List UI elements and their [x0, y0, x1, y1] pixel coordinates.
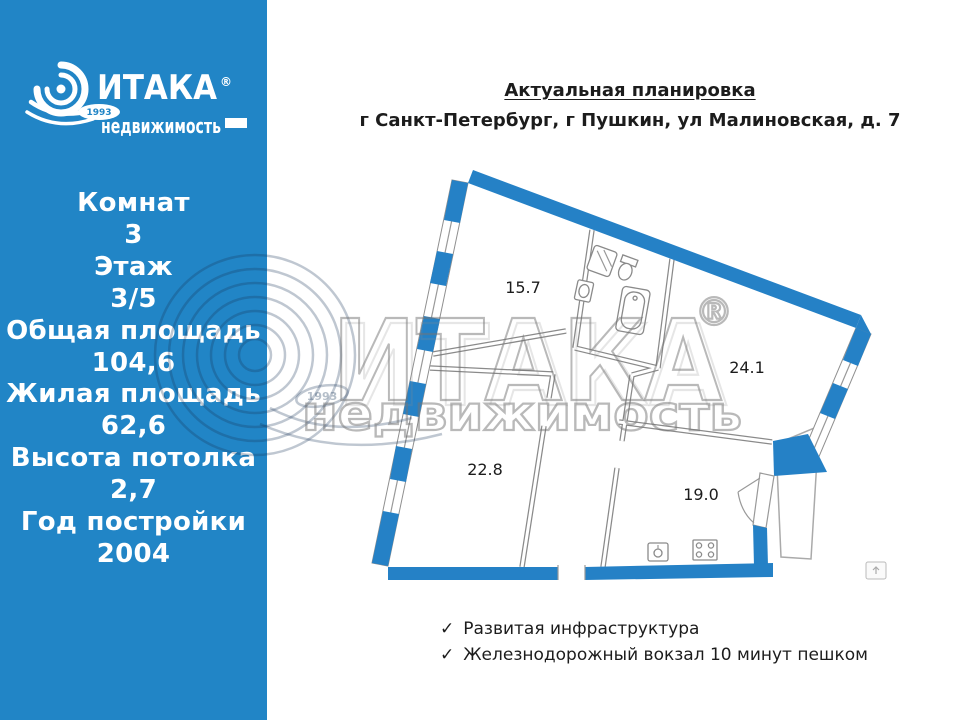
- bathtub-icon: [615, 286, 650, 335]
- itaka-logo: 1993 ИТАКА ® недвижимость: [25, 55, 255, 145]
- listing-page: 1993 ИТАКА ® недвижимость Комнат 3 Этаж …: [0, 0, 960, 720]
- stat-value-total-area: 104,6: [0, 348, 267, 380]
- stat-label-living-area: Жилая площадь: [0, 379, 267, 411]
- room-area-label-2: 24.1: [729, 358, 765, 377]
- kitchen-sink-icon: [648, 543, 668, 561]
- sink-icon: [574, 280, 594, 303]
- interior-walls: [430, 230, 772, 567]
- floor-plan: 15.7 24.1 22.8 19.0: [370, 160, 930, 630]
- toilet-icon: [615, 255, 638, 283]
- page-title: Актуальная планировка: [330, 80, 930, 101]
- stat-label-ceiling: Высота потолка: [0, 443, 267, 475]
- feature-list: ✓ Развитая инфраструктура ✓ Железнодорож…: [440, 616, 868, 668]
- property-address: г Санкт-Петербург, г Пушкин, ул Малиновс…: [330, 110, 930, 131]
- stat-value-ceiling: 2,7: [0, 475, 267, 507]
- check-icon: ✓: [440, 616, 454, 642]
- stat-value-year-built: 2004: [0, 539, 267, 571]
- watermark-year: 1993: [307, 390, 338, 403]
- stove-icon: [693, 540, 717, 560]
- sidebar: 1993 ИТАКА ® недвижимость Комнат 3 Этаж …: [0, 0, 267, 720]
- logo-brand: ИТАКА: [97, 68, 218, 108]
- feature-railway: ✓ Железнодорожный вокзал 10 минут пешком: [440, 642, 868, 668]
- stat-label-rooms: Комнат: [0, 188, 267, 220]
- feature-text: Железнодорожный вокзал 10 минут пешком: [463, 642, 868, 668]
- room-area-label-3: 22.8: [467, 460, 503, 479]
- feature-text: Развитая инфраструктура: [463, 616, 699, 642]
- stat-label-total-area: Общая площадь: [0, 316, 267, 348]
- property-stats: Комнат 3 Этаж 3/5 Общая площадь 104,6 Жи…: [0, 188, 267, 571]
- stat-value-rooms: 3: [0, 220, 267, 252]
- stat-label-floor: Этаж: [0, 252, 267, 284]
- plan-header: Актуальная планировка г Санкт-Петербург,…: [330, 80, 930, 131]
- check-icon: ✓: [440, 642, 454, 668]
- logo-subtitle: недвижимость: [101, 114, 221, 138]
- logo-reg-mark: ®: [220, 75, 232, 89]
- room-area-label-1: 15.7: [505, 278, 541, 297]
- entrance-marker-icon: [866, 562, 886, 579]
- stat-label-year-built: Год постройки: [0, 507, 267, 539]
- logo-underline-bar: [225, 118, 247, 128]
- feature-infrastructure: ✓ Развитая инфраструктура: [440, 616, 868, 642]
- stat-value-living-area: 62,6: [0, 411, 267, 443]
- room-area-label-4: 19.0: [683, 485, 719, 504]
- stat-value-floor: 3/5: [0, 284, 267, 316]
